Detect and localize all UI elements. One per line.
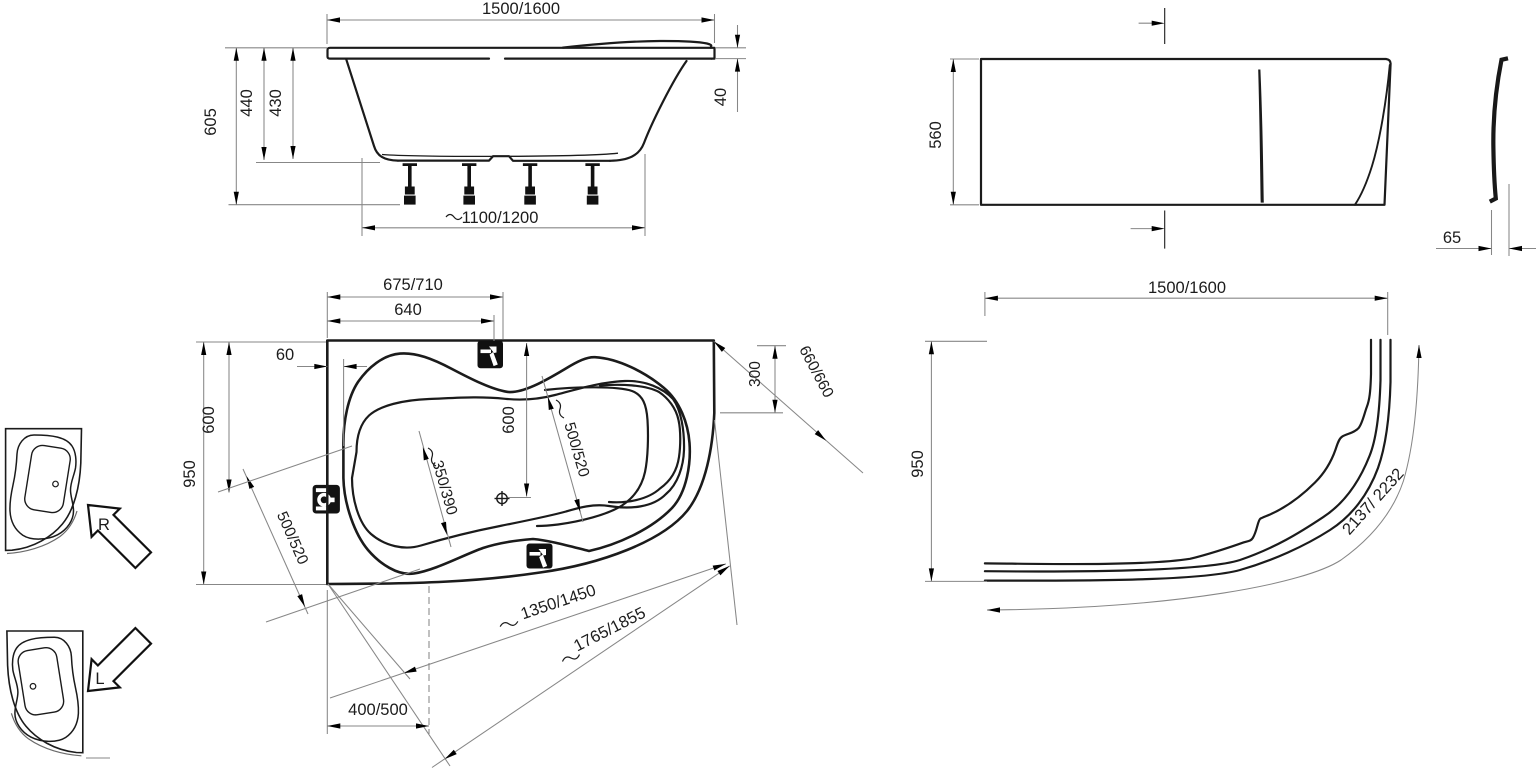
svg-text:65: 65 [1443, 229, 1461, 247]
svg-text:L: L [95, 670, 104, 688]
svg-text:1100/1200: 1100/1200 [462, 209, 539, 227]
svg-text:640: 640 [394, 301, 422, 319]
svg-text:440: 440 [238, 89, 256, 117]
svg-text:300: 300 [747, 361, 764, 387]
svg-text:600: 600 [200, 406, 218, 434]
svg-text:950: 950 [181, 460, 199, 488]
svg-text:430: 430 [267, 89, 285, 117]
svg-text:40: 40 [712, 88, 730, 106]
svg-text:950: 950 [909, 450, 927, 478]
svg-text:60: 60 [276, 346, 294, 364]
svg-text:R: R [98, 516, 110, 534]
svg-text:1500/1600: 1500/1600 [482, 0, 560, 18]
svg-text:560: 560 [927, 121, 945, 149]
svg-text:675/710: 675/710 [383, 276, 443, 294]
svg-text:600: 600 [500, 406, 518, 434]
svg-text:400/500: 400/500 [348, 701, 408, 719]
svg-text:605: 605 [202, 108, 220, 136]
svg-text:1500/1600: 1500/1600 [1148, 279, 1226, 297]
